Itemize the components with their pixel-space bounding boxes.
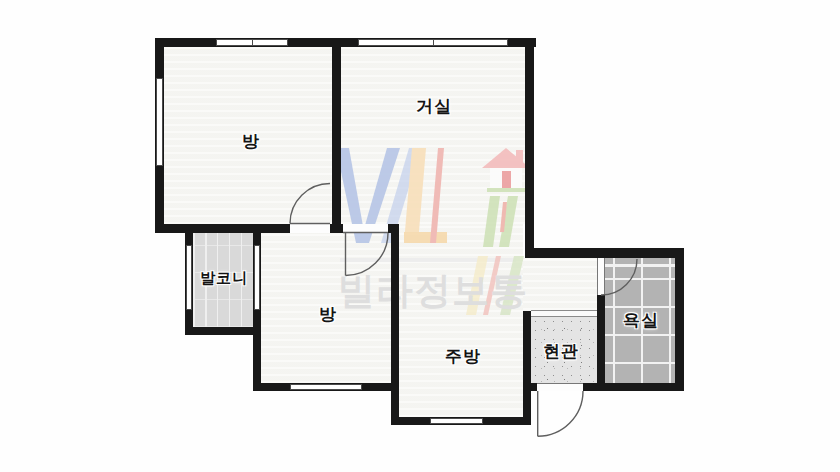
door-swings (0, 0, 840, 472)
door-arc-bathroom (601, 259, 637, 295)
room-label-kitchen: 주방 (445, 345, 481, 368)
door-arc-room-top-left (290, 184, 330, 224)
room-label-room-top-left: 방 (242, 130, 260, 153)
floor-plan: 빌라정보통 방 거실 발코니 방 (0, 0, 840, 472)
room-label-living-room: 거실 (416, 95, 452, 118)
door-arc-main-entrance (538, 391, 583, 436)
door-arc-room-middle (346, 233, 389, 276)
room-label-entrance: 현관 (543, 340, 579, 363)
room-label-balcony: 발코니 (200, 269, 248, 288)
room-label-room-middle: 방 (319, 303, 337, 326)
room-label-bathroom: 욕실 (623, 309, 659, 332)
